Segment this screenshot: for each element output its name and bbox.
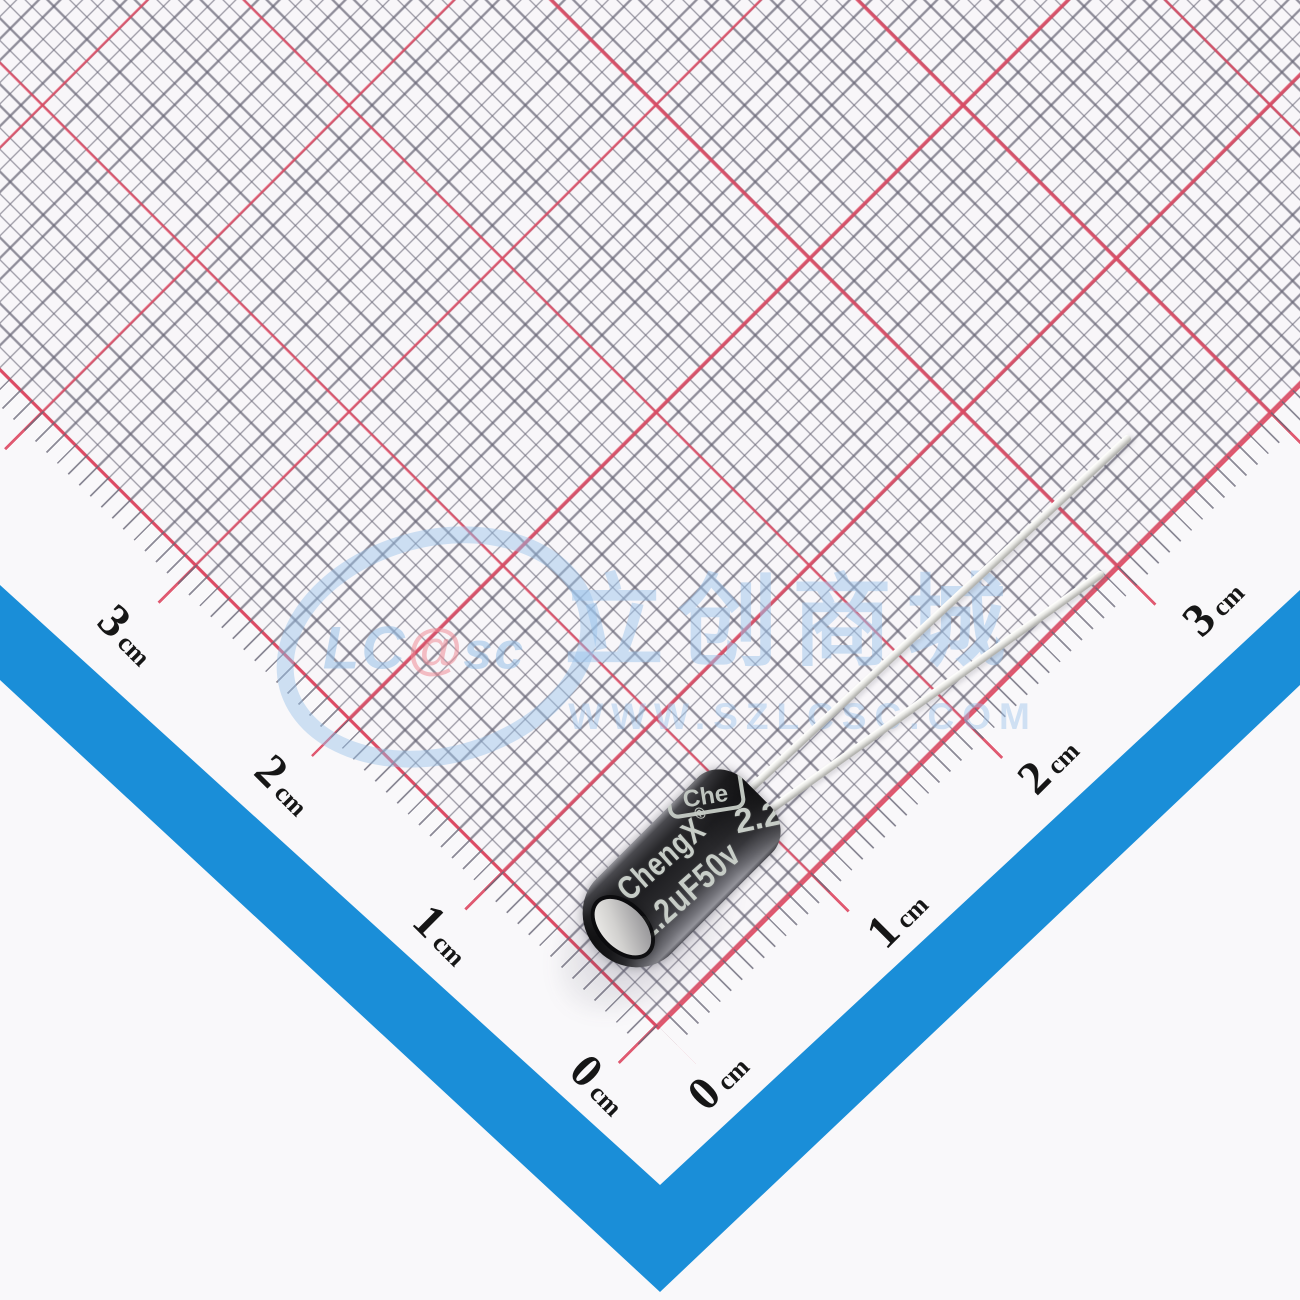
logo-sc: sc bbox=[463, 623, 525, 681]
ruler-label-left-3cm: 3cm bbox=[87, 594, 170, 677]
watermark-website: WWW.SZLCSC.COM bbox=[568, 696, 1038, 738]
logo-lc: LC bbox=[323, 615, 407, 682]
lcsc-logo-text: LC@sc bbox=[323, 614, 525, 683]
logo-at-icon: @ bbox=[407, 618, 464, 681]
watermark-brand-chinese: 立创商城 bbox=[564, 541, 1020, 686]
component-photo-scene: LC@sc 立创商城 WWW.SZLCSC.COM 3cm 2cm 1cm 0c… bbox=[0, 0, 1300, 1300]
ruler-label-right-3cm: 3cm bbox=[1172, 565, 1255, 648]
